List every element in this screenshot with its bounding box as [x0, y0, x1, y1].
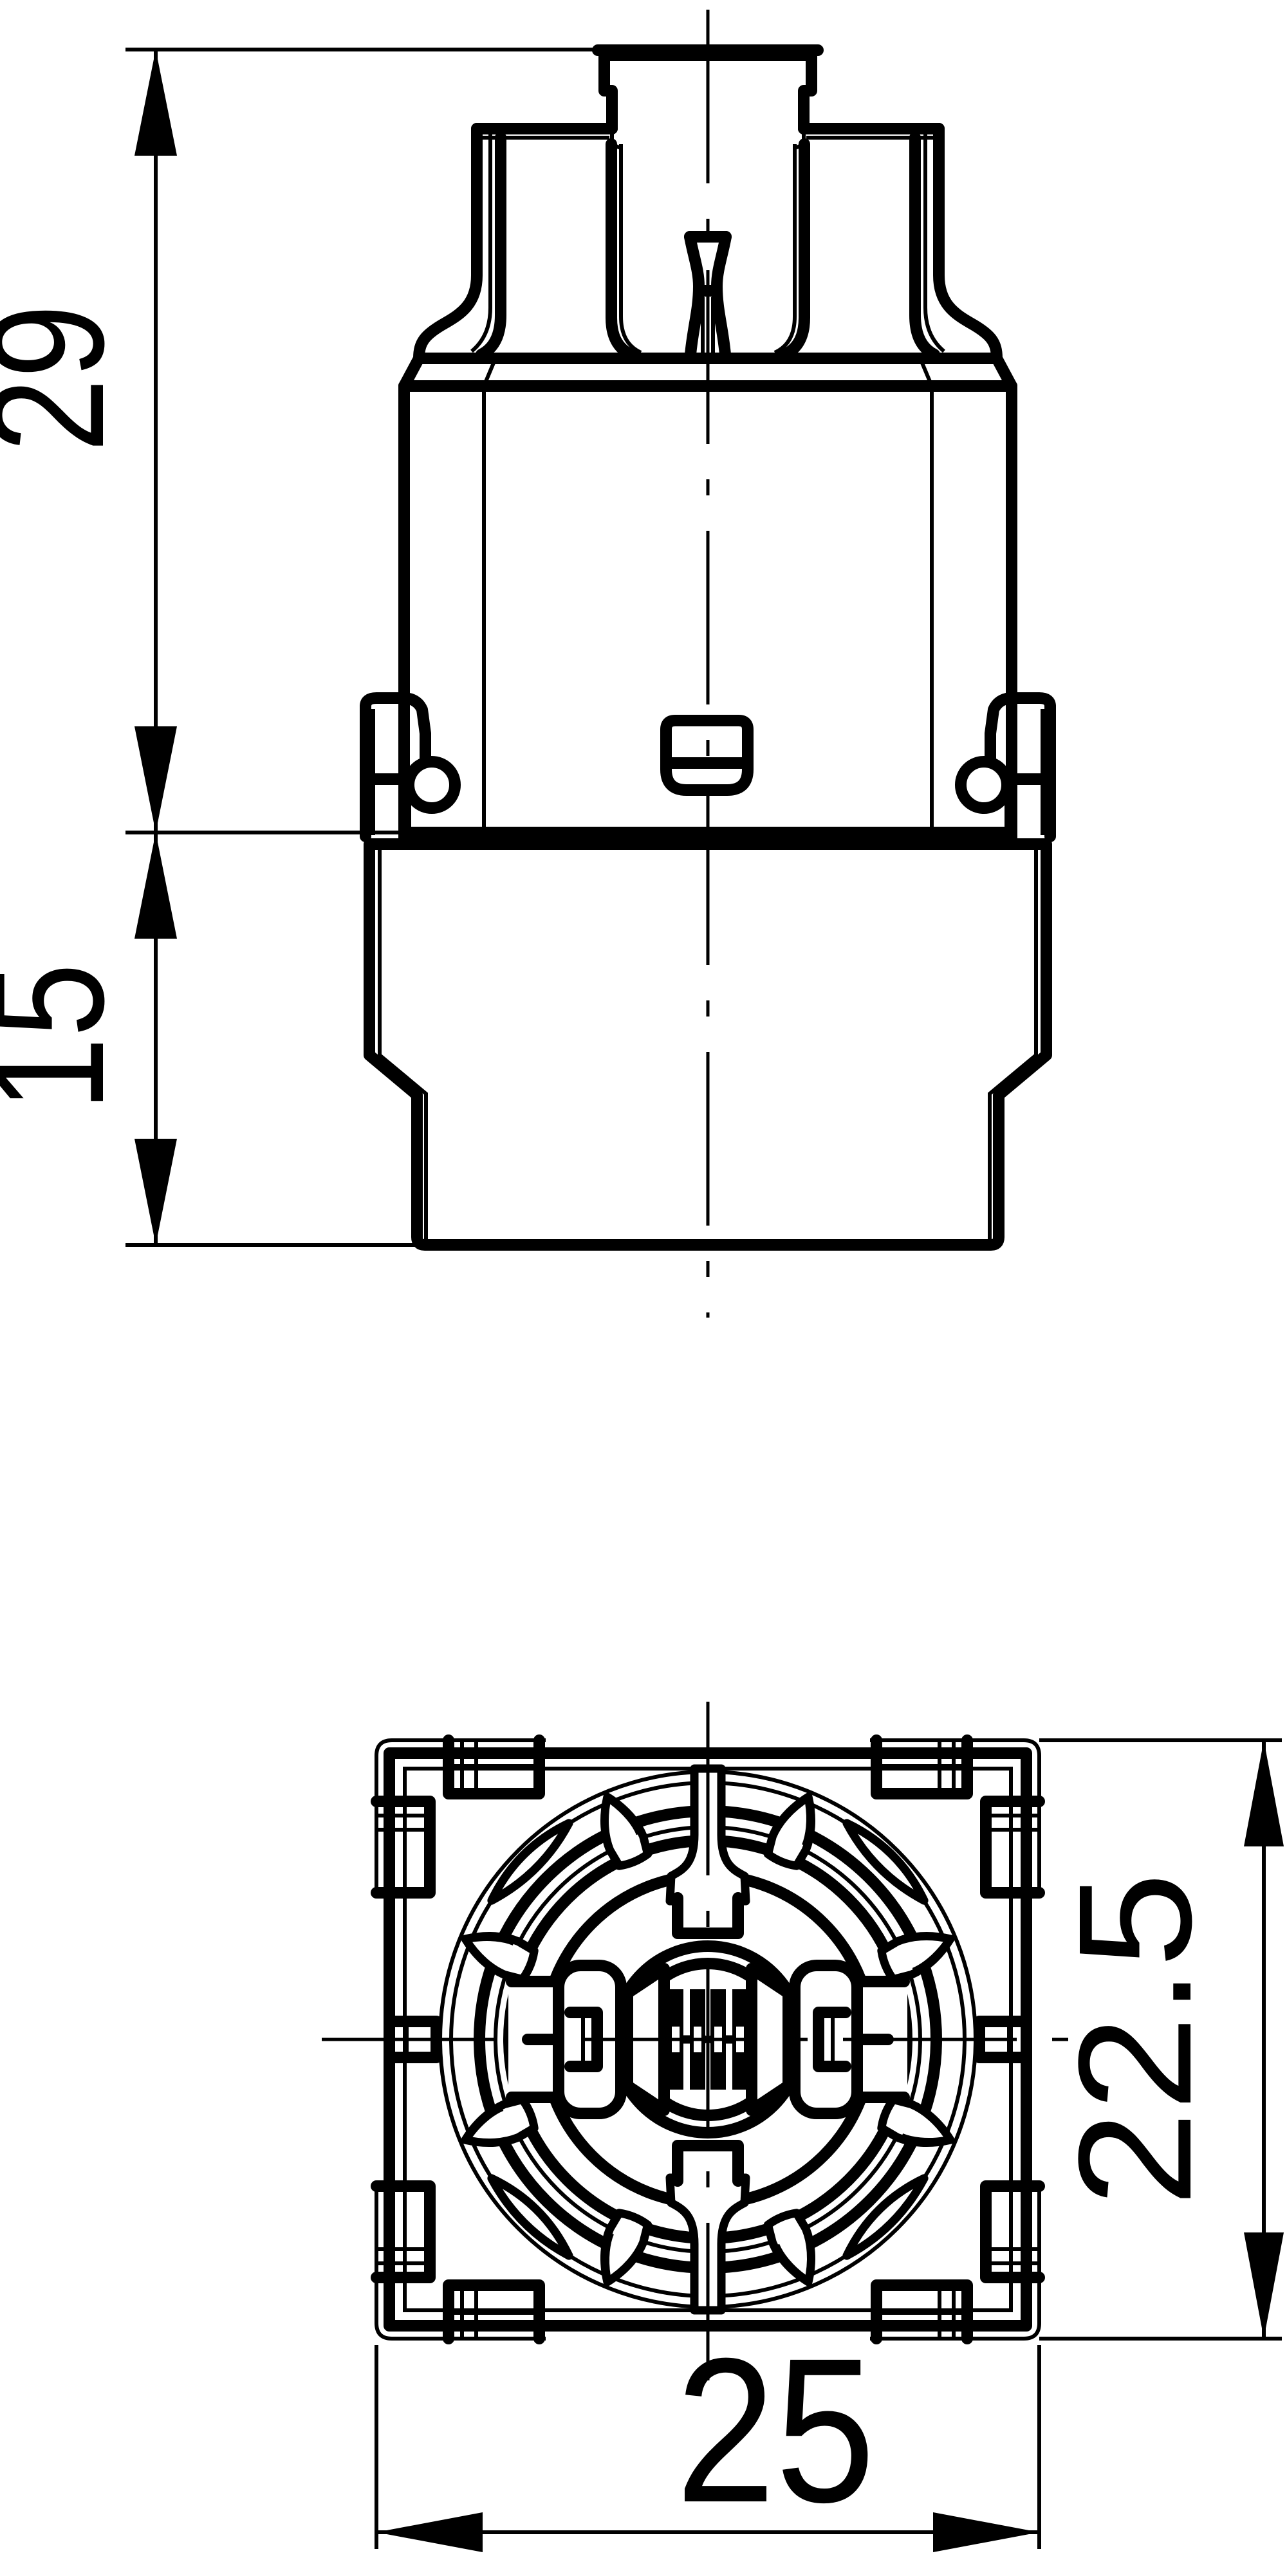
arrow-down-bottom — [134, 1139, 177, 1245]
arrow-down-right — [1244, 2232, 1284, 2339]
rib-left-mid — [611, 144, 636, 356]
rib-right-mid-inner — [775, 144, 795, 353]
arrow-right-bottom — [933, 2512, 1039, 2552]
latch-left — [366, 698, 455, 840]
dim-label-22-5: 22.5 — [1045, 1872, 1225, 2207]
dimension-29-15: 29 15 — [0, 50, 598, 1245]
collar-wall-right — [939, 129, 997, 358]
arrow-left-bottom — [376, 2512, 483, 2552]
arrow-down-mid — [134, 726, 177, 833]
connector-drawing: 29 15 — [0, 0, 1287, 2576]
latch-right — [961, 698, 1050, 840]
collar-wall-left — [419, 129, 477, 358]
dim-label-25: 25 — [676, 2315, 875, 2545]
bottom-view: 22.5 25 — [322, 1702, 1284, 2552]
wing-right — [752, 1969, 788, 2110]
arrow-up-mid — [134, 833, 177, 939]
dimension-22-5: 22.5 — [1039, 1740, 1284, 2339]
front-view: 29 15 — [0, 10, 1050, 1318]
dim-label-29: 29 — [0, 304, 137, 452]
dim-label-15: 15 — [0, 963, 137, 1111]
technical-drawing-page: 29 15 — [0, 0, 1287, 2576]
rib-right-mid — [780, 144, 804, 356]
rib-left-mid-inner — [621, 144, 641, 353]
arrow-up-top — [134, 50, 177, 156]
arrow-up-right — [1244, 1740, 1284, 1846]
